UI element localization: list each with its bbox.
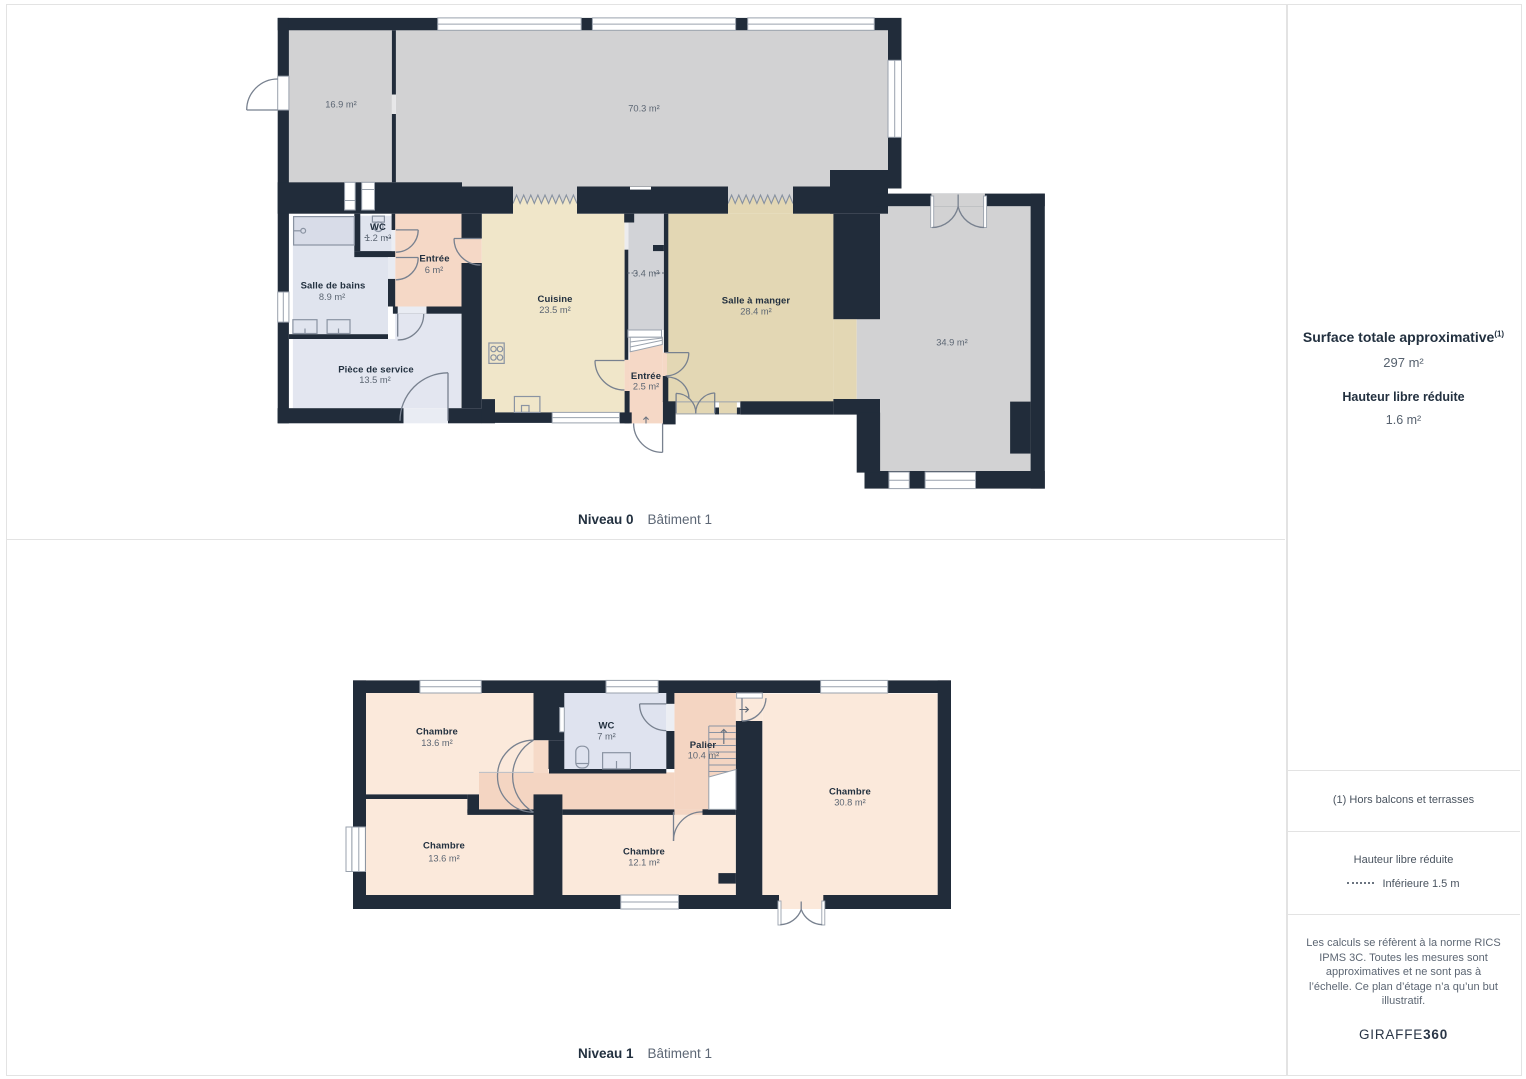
svg-text:WC: WC [370, 222, 386, 233]
svg-text:Pièce de service: Pièce de service [338, 365, 414, 376]
svg-text:2.5 m²: 2.5 m² [633, 382, 659, 392]
svg-text:Entrée: Entrée [631, 371, 661, 382]
svg-text:16.9 m²: 16.9 m² [325, 100, 357, 110]
svg-text:6 m²: 6 m² [425, 265, 444, 275]
svg-text:Chambre: Chambre [416, 727, 458, 738]
svg-text:70.3 m²: 70.3 m² [628, 104, 660, 114]
svg-text:Salle à manger: Salle à manger [722, 296, 791, 307]
svg-text:Chambre: Chambre [423, 841, 465, 852]
svg-text:12.1 m²: 12.1 m² [628, 858, 660, 868]
svg-text:Palier: Palier [690, 740, 717, 751]
svg-text:28.4 m²: 28.4 m² [740, 307, 772, 317]
svg-text:Entrée: Entrée [419, 254, 449, 265]
svg-text:30.8 m²: 30.8 m² [834, 798, 866, 808]
svg-text:Chambre: Chambre [623, 847, 665, 858]
svg-text:Cuisine: Cuisine [537, 294, 572, 305]
svg-text:10.4 m²: 10.4 m² [688, 751, 720, 761]
svg-text:7 m²: 7 m² [597, 732, 616, 742]
svg-text:WC: WC [598, 721, 614, 732]
svg-text:34.9 m²: 34.9 m² [936, 338, 968, 348]
svg-text:13.5 m²: 13.5 m² [359, 375, 391, 385]
svg-text:23.5 m²: 23.5 m² [539, 305, 571, 315]
svg-text:Salle de bains: Salle de bains [301, 281, 366, 292]
svg-text:13.6 m²: 13.6 m² [421, 738, 453, 748]
svg-text:Chambre: Chambre [829, 787, 871, 798]
svg-text:3.4 m²: 3.4 m² [633, 269, 659, 279]
svg-text:1.2 m²: 1.2 m² [365, 233, 391, 243]
svg-text:8.9 m²: 8.9 m² [319, 292, 345, 302]
svg-text:13.6 m²: 13.6 m² [428, 854, 460, 864]
